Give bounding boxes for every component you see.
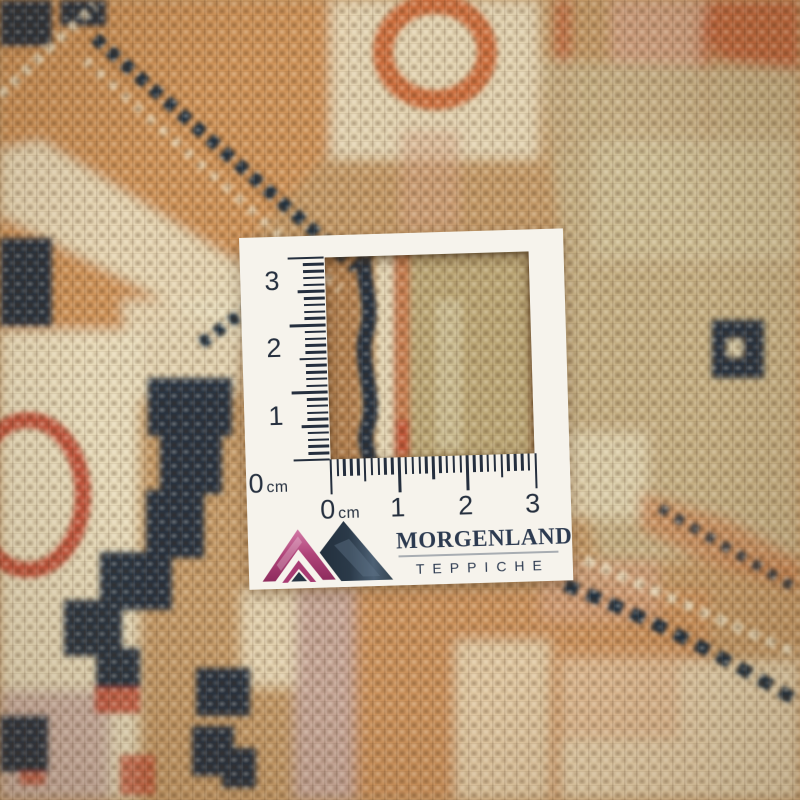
mountain-peaks-logo-icon bbox=[251, 518, 395, 586]
vertical-ruler-label: 1 bbox=[244, 402, 287, 436]
brand-block: MORGENLAND TEPPICHE bbox=[396, 524, 561, 578]
measurement-card: 3 2 1 0cm 0cm 1 2 3 bbox=[239, 228, 573, 589]
brand-name: MORGENLAND bbox=[396, 524, 561, 555]
horizontal-ruler-label: 2 bbox=[458, 491, 477, 525]
window-cutout bbox=[325, 251, 535, 459]
carpet-photo: 3 2 1 0cm 0cm 1 2 3 bbox=[0, 0, 800, 800]
vertical-ruler: 3 2 1 0cm bbox=[240, 259, 290, 462]
vertical-ruler-label: 2 bbox=[242, 334, 285, 368]
card-panel-right bbox=[529, 250, 570, 453]
horizontal-ruler-label: 3 bbox=[525, 489, 544, 523]
vertical-ruler-label: 3 bbox=[240, 267, 283, 301]
